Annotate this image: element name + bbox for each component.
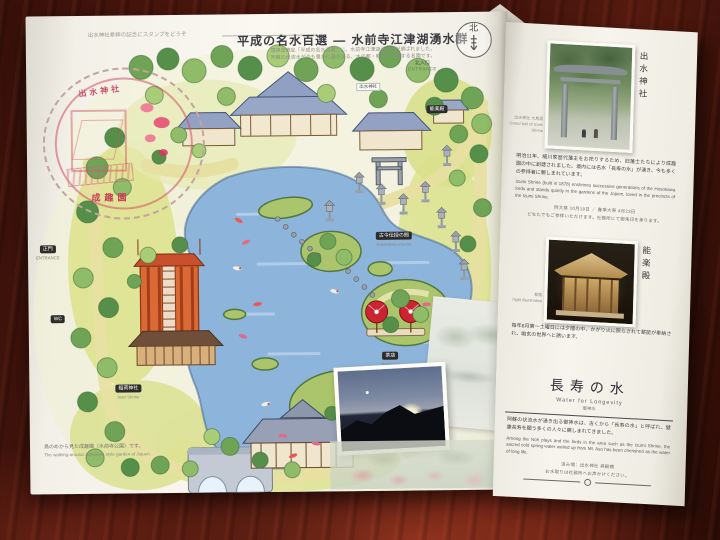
torii-lintel <box>554 64 628 75</box>
stamp-blossom <box>140 103 153 112</box>
info-page: 出水神社 出水神社 大鳥居 Grand torii of Izumi Shrin… <box>493 22 698 506</box>
photo-torii <box>544 40 635 153</box>
noh-stage-body <box>562 277 620 313</box>
stamp-garden-name: 成趣園 <box>91 190 130 203</box>
stamp-note: 出水神社参拝の記念にスタンプをどうぞ <box>88 30 187 39</box>
commemorative-stamp: 出水神社 成趣園 <box>54 77 193 210</box>
map-label-north-entrance: 北入口 ENTRANCE <box>408 60 437 72</box>
moon-dot <box>366 391 369 394</box>
stamp-shrine-name: 出水神社 <box>78 83 123 100</box>
shrine-description: 明治11年、細川家歴代藩主をお祀りするため、旧藩士たちにより成趣園の中に創建され… <box>515 153 677 225</box>
map-label-kokindenju: 古今伝授の間 Kokindenju-no-ma <box>376 223 412 248</box>
compass-arrow-icon <box>469 35 479 51</box>
map-caption: 鳥のめから見た成趣園（水前寺公園）です。 The walking-around … <box>44 443 151 458</box>
noh-stage-roof <box>554 251 629 279</box>
mountain-silhouette <box>338 366 446 452</box>
visitor-figure <box>582 129 586 137</box>
map-label-izumi-shrine: 出水神社 <box>356 83 380 91</box>
map-label-main-gate: 正門 ENTRANCE <box>36 236 60 261</box>
longevity-water-heading: 長寿の水 Water for Longevity 御神水 <box>505 372 674 421</box>
photo-noh-stage <box>544 236 638 327</box>
torii-pillar <box>561 84 568 137</box>
photo-of-brochure-on-table: 出水神社参拝の記念にスタンプをどうぞ 出水神社 成趣園 平成の名水百選 ― 水前… <box>0 0 720 540</box>
map-label-inari-shrine: 稲荷神社 Inari Shrine <box>115 375 141 400</box>
noh-description: 毎年8月第一土曜日には夕闇の中、かがり火に照らされて薪能が奉納され、幽玄の世界へ… <box>511 323 671 350</box>
map-label-noh-stage: 能楽殿 <box>426 96 447 115</box>
photo1-vertical-caption: 出水神社 <box>636 51 649 102</box>
map-page: 出水神社参拝の記念にスタンプをどうぞ 出水神社 成趣園 平成の名水百選 ― 水前… <box>26 11 513 494</box>
map-label-wc: WC <box>51 306 66 325</box>
photo2-caption: 薪能 night illumination <box>502 290 542 304</box>
lotus-photo-strip <box>330 439 510 489</box>
photo2-vertical-caption: 能楽殿 <box>639 245 652 283</box>
photo1-caption: 出水神社 大鳥居 Grand torii of Izumi Shrine <box>505 114 543 134</box>
compass-north-icon: 北 <box>456 22 492 58</box>
longevity-water-description: 阿蘇の伏流水が湧き出る御神水は、古くから「長寿の水」と呼ばれ、健康長寿を願う多く… <box>505 416 670 481</box>
